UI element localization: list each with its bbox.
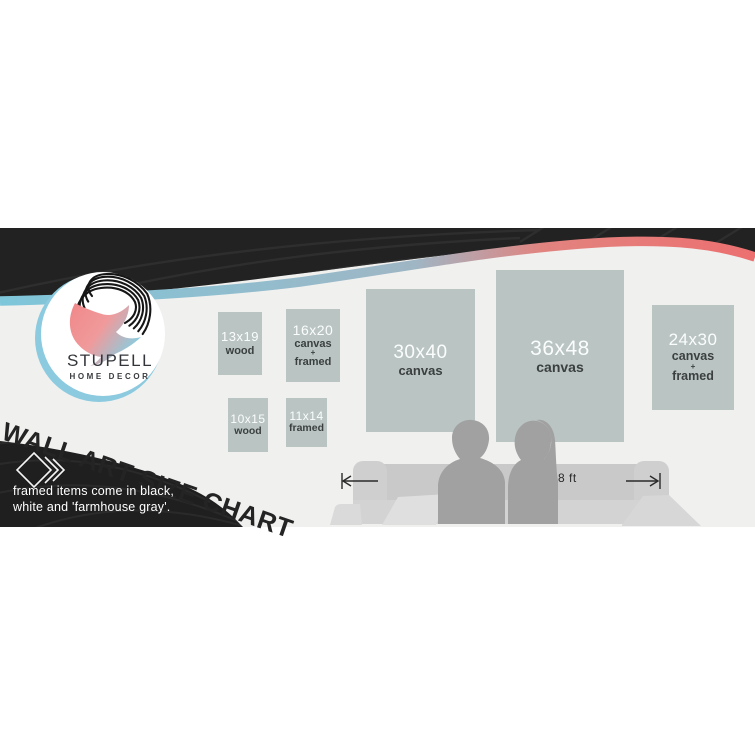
- framed-note-line-1: framed items come in black,: [13, 484, 174, 500]
- couple-silhouette: [438, 420, 558, 524]
- framed-note-line-2: white and 'farmhouse gray'.: [13, 500, 174, 516]
- brand-name: STUPELL: [60, 351, 160, 371]
- brand-tagline: HOME DECOR: [60, 372, 160, 381]
- wall-art-size-chart-banner: 13x19 wood 16x20 canvas + framed 10x15 w…: [0, 0, 755, 755]
- framed-note: framed items come in black, white and 'f…: [13, 484, 174, 515]
- measure-label: 8 ft: [558, 471, 577, 485]
- man-silhouette: [438, 420, 505, 524]
